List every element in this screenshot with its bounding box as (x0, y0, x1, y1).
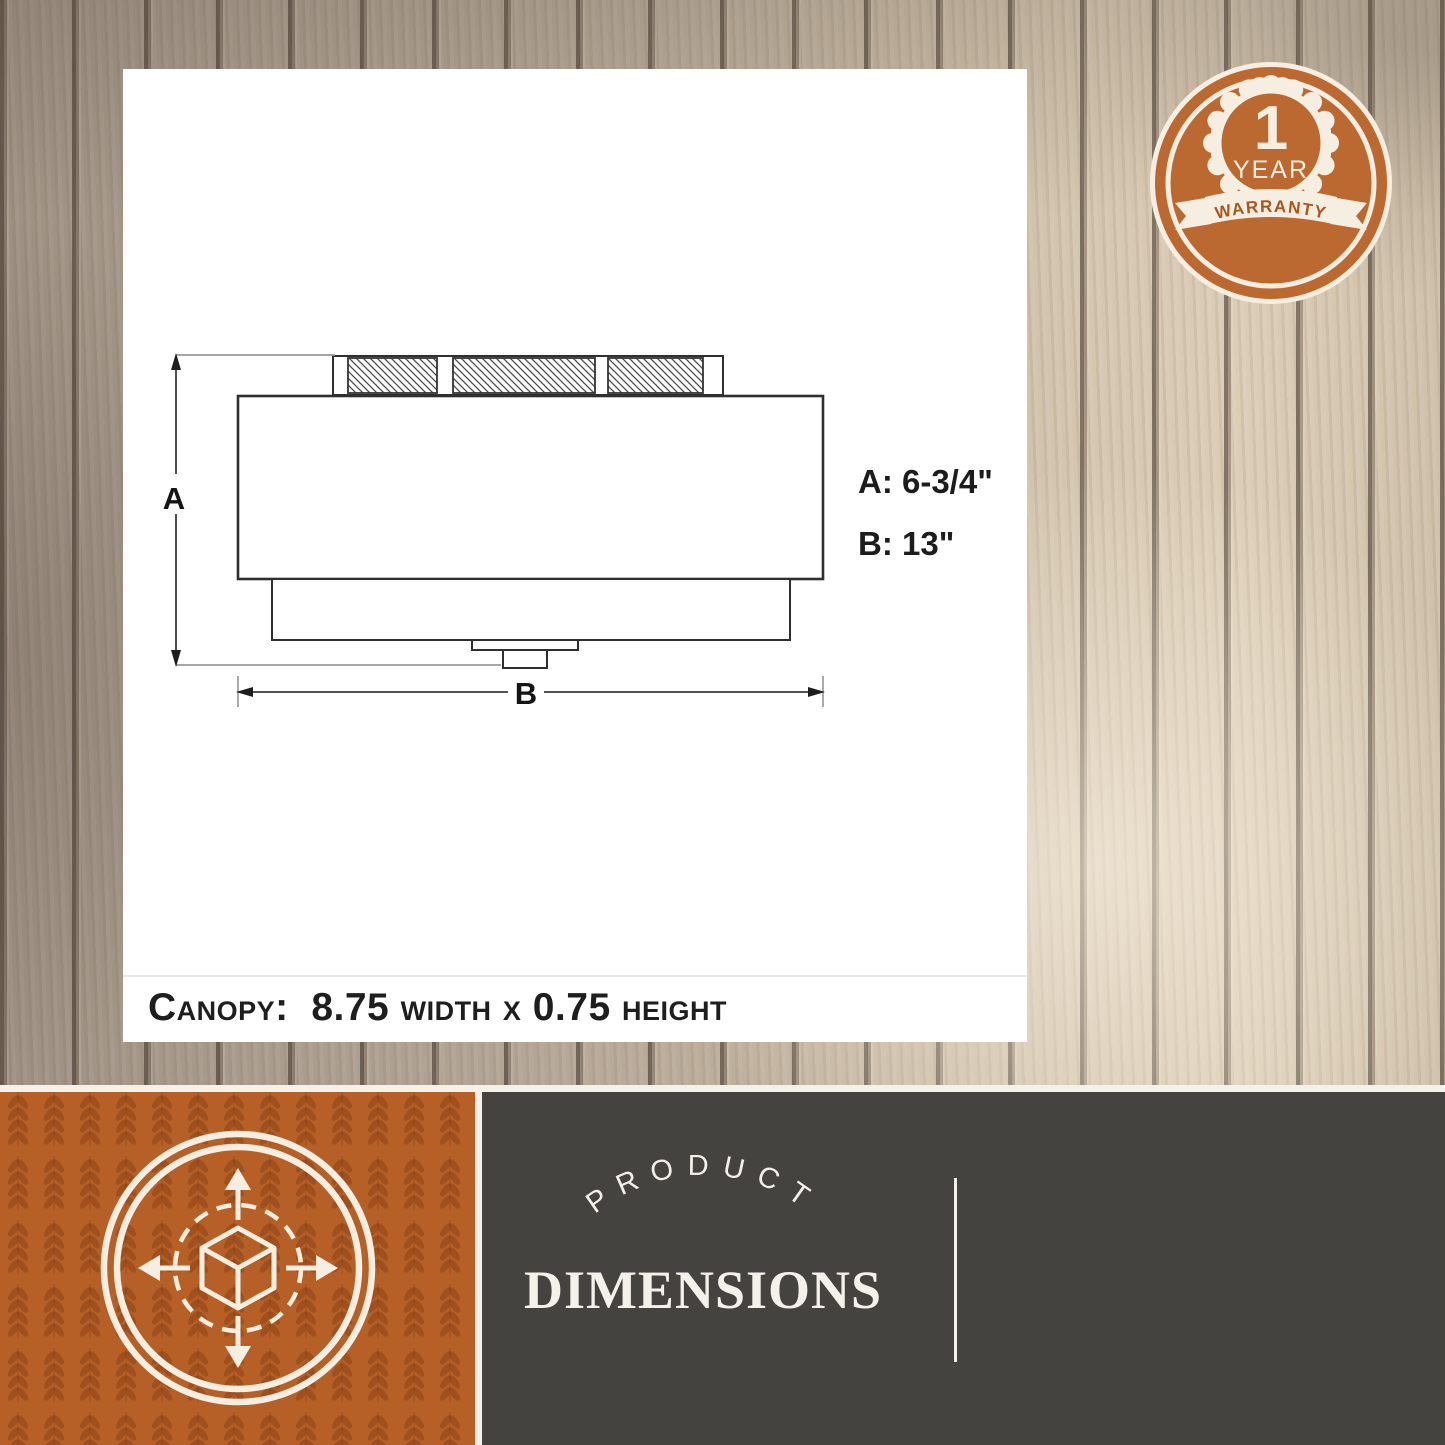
vertical-separator (475, 1092, 482, 1445)
finial-knob (472, 640, 578, 668)
product-arc-text: PRODUCT (580, 1150, 825, 1220)
dim-b-letter: B (515, 676, 537, 711)
dimensions-title: DIMENSIONS (524, 1260, 882, 1320)
badge-year-word: YEAR (1233, 156, 1309, 184)
horizontal-separator (0, 1085, 1445, 1092)
fixture-line-drawing: A B A: 6-3/4" B: 13" Canopy: 8.75 width … (123, 69, 1027, 1042)
svg-text:PRODUCT: PRODUCT (580, 1150, 825, 1220)
canopy-plate (333, 356, 723, 395)
drum-shade-body (238, 396, 823, 579)
dim-a-value: A: 6-3/4" (858, 463, 993, 500)
caption-art: PRODUCT DIMENSIONS (482, 1092, 1445, 1445)
canopy-caption: Canopy: 8.75 width x 0.75 height (148, 986, 727, 1029)
bottom-diffuser (272, 579, 790, 640)
badge-year-number: 1 (1254, 94, 1288, 163)
caption-tile: PRODUCT DIMENSIONS BACKED BY A 1 YEAR WA… (482, 1092, 1445, 1445)
warranty-badge: 1 YEAR WARRANTY (1146, 58, 1396, 308)
cube-expand-arrows-icon (0, 1092, 475, 1445)
dim-a-letter: A (163, 481, 185, 516)
diagram-panel: A B A: 6-3/4" B: 13" Canopy: 8.75 width … (123, 69, 1027, 1042)
dimensions-icon-tile (0, 1092, 475, 1445)
dimension-b: B (236, 675, 825, 711)
product-dimensions-graphic: A B A: 6-3/4" B: 13" Canopy: 8.75 width … (0, 0, 1445, 1445)
dim-b-value: B: 13" (858, 525, 954, 562)
